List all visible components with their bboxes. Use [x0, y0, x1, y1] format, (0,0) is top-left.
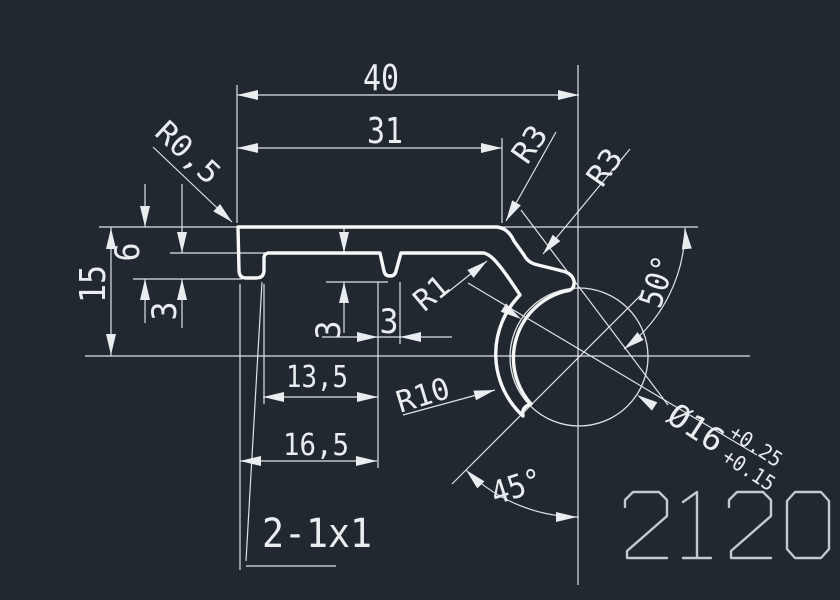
dim-15: 15: [73, 265, 114, 303]
dim-40: 40: [363, 58, 399, 99]
dim-3-groove-width: 3: [380, 302, 399, 342]
note-chamfer: 2-1x1: [262, 511, 372, 557]
cad-drawing-canvas[interactable]: 4031R0,5R3R315633313,516,5R1R1050°45°Ø16…: [0, 0, 840, 600]
dim-31: 31: [367, 111, 403, 152]
dim-3-groove-depth: 3: [309, 321, 349, 340]
dim-3-left: 3: [145, 302, 185, 321]
dim-6: 6: [108, 243, 148, 262]
dim-16-5: 16,5: [283, 428, 349, 463]
dim-13-5: 13,5: [286, 360, 348, 395]
